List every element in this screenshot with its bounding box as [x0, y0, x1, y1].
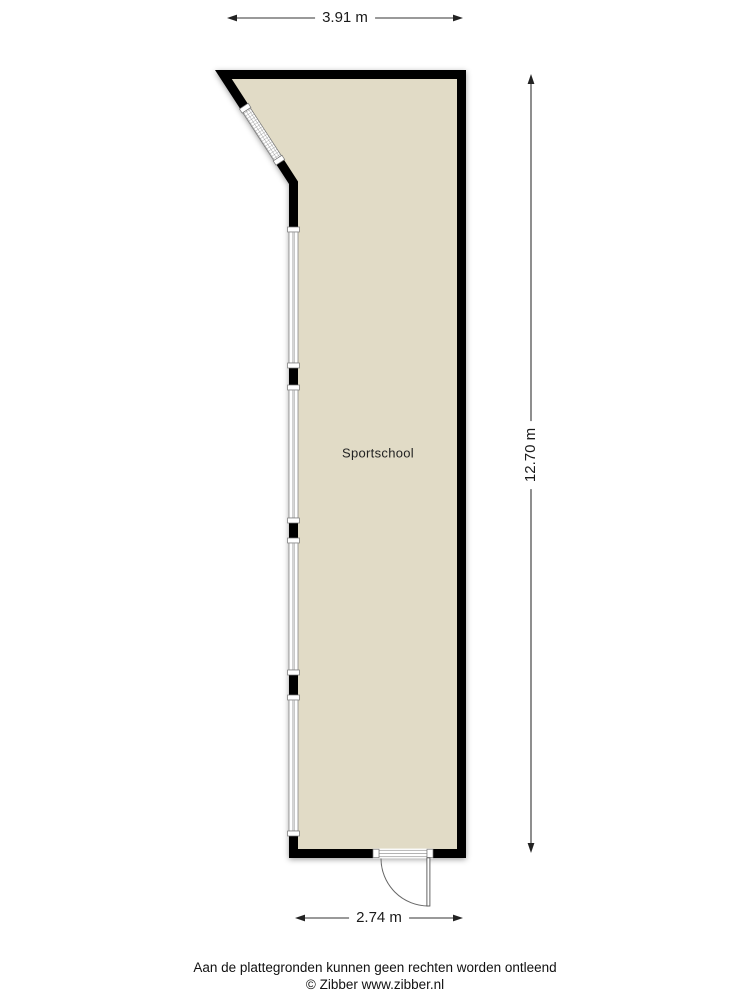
- arrow-left-icon: [295, 915, 305, 922]
- room-floor: [232, 79, 457, 849]
- arrow-right-icon: [453, 915, 463, 922]
- footer-disclaimer: Aan de plattegronden kunnen geen rechten…: [0, 960, 750, 975]
- window-cap: [288, 385, 300, 390]
- arrow-left-icon: [227, 15, 237, 22]
- window: [289, 232, 298, 363]
- door-swing-arc: [381, 859, 429, 907]
- window: [289, 390, 298, 518]
- arrow-down-icon: [528, 843, 535, 853]
- window-cap: [288, 363, 300, 368]
- window-cap: [288, 518, 300, 523]
- right-dimension-label: 12.70 m: [521, 421, 541, 489]
- door-jamb: [373, 849, 379, 857]
- window: [289, 543, 298, 670]
- window: [289, 700, 298, 831]
- window-cap: [288, 670, 300, 675]
- floorplan-page: 3.91 m 12.70 m 2.74 m Sportschool Aan de…: [0, 0, 750, 1000]
- window-cap: [288, 538, 300, 543]
- footer-credit: © Zibber www.zibber.nl: [0, 977, 750, 992]
- window-cap: [288, 695, 300, 700]
- door-leaf: [427, 858, 430, 906]
- building: [215, 70, 466, 858]
- room-label: Sportschool: [342, 446, 414, 461]
- arrow-up-icon: [528, 74, 535, 84]
- top-dimension-label: 3.91 m: [315, 8, 375, 28]
- window-cap: [288, 227, 300, 232]
- arrow-right-icon: [453, 15, 463, 22]
- bottom-dimension-label: 2.74 m: [349, 908, 409, 928]
- floorplan-drawing: [0, 0, 750, 1000]
- window-cap: [288, 831, 300, 836]
- entry-door: [373, 849, 433, 906]
- door-jamb: [427, 849, 433, 857]
